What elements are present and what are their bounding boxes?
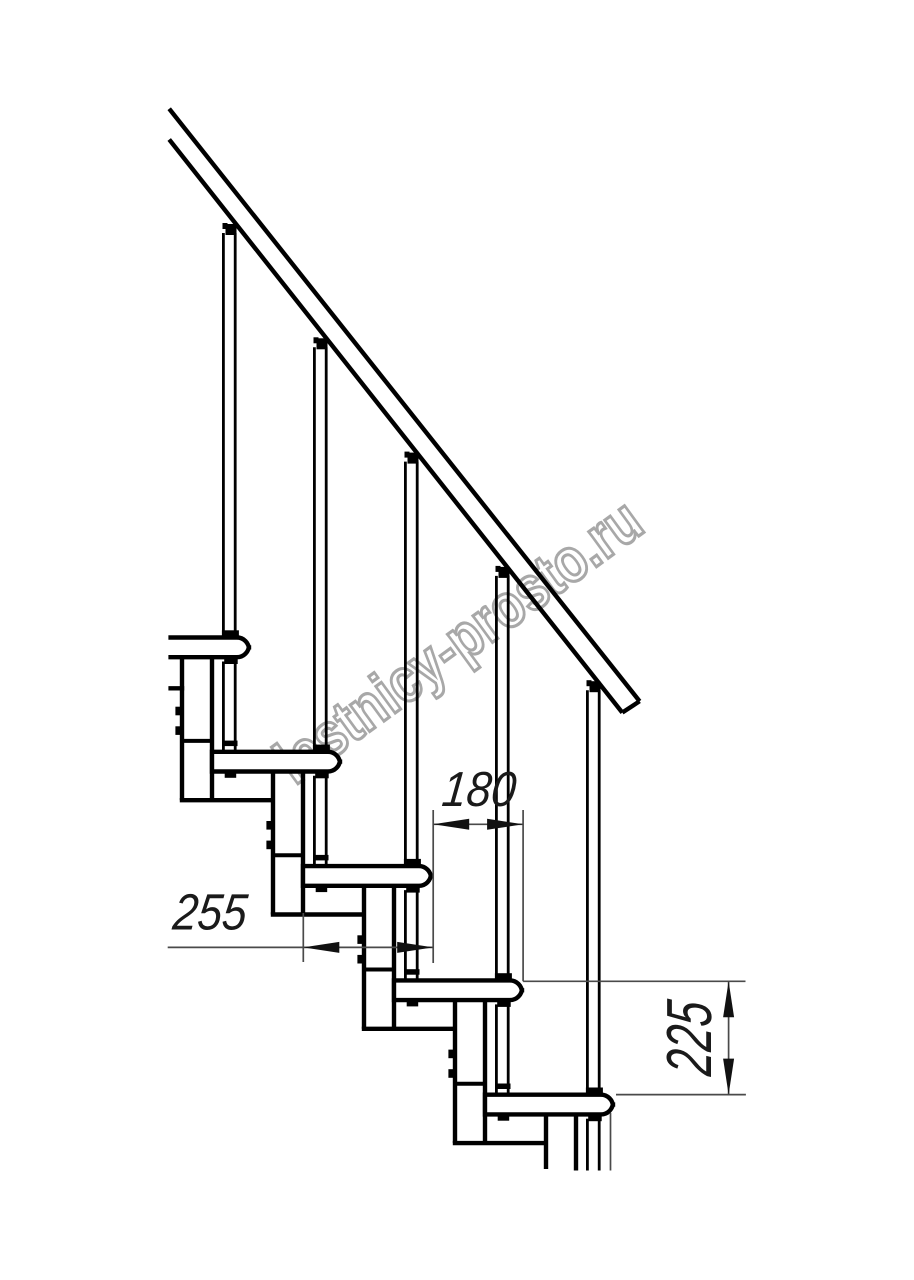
svg-text:255: 255 [170, 885, 251, 942]
svg-text:180: 180 [440, 762, 519, 817]
svg-text:225: 225 [653, 997, 725, 1079]
